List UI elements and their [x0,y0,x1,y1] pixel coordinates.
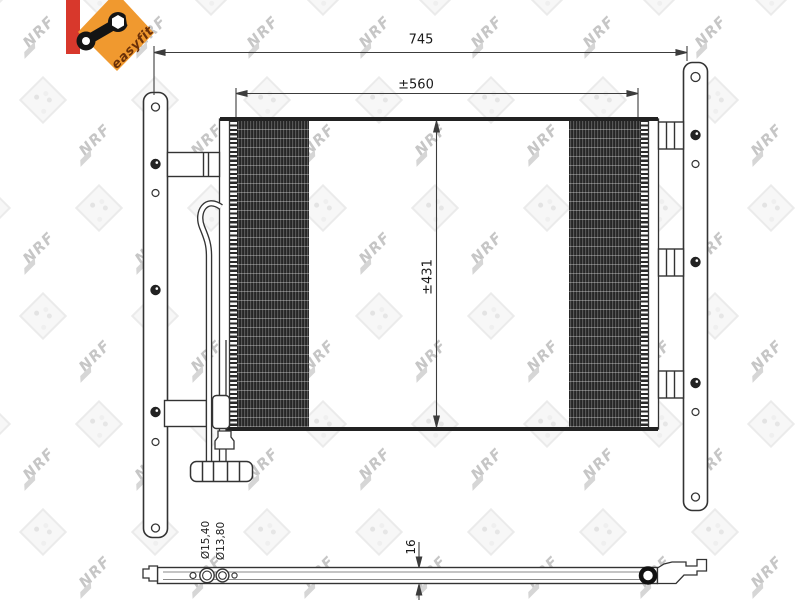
tank-outlet-flange [215,431,234,449]
technical-drawing-page: NRFNRFNRFNRFNRFNRFNRFNRFNRFNRFNRFNRFNRFN… [0,0,800,600]
lower-outlet-pipe [165,401,207,427]
top-inlet-pipe [168,153,220,177]
port-small [216,569,229,582]
right-connector-blocks [659,122,684,398]
port-diameter-large-label: Ø15,40 [200,521,212,559]
core-bottom-plate [220,427,658,431]
bottom-service-fitting [191,462,253,482]
thickness-dimension-label: 16 [404,539,418,554]
port-diameter-small-label: Ø13,80 [215,522,227,560]
port-large [200,568,214,582]
core-top-plate [220,117,658,121]
side-view-right-hook [658,560,707,584]
right-mounting-bracket [684,63,708,511]
right-header-tank [649,119,659,429]
side-view-ring [641,569,655,583]
overall-width-dimension-label: 745 [409,33,434,48]
dimension-lines [154,46,687,600]
side-view-left-hook [143,566,158,581]
core-height-dimension-label: ±431 [421,259,436,295]
condenser-side-view [143,560,707,584]
tube-coupler [213,396,230,429]
core-width-dimension-label: ±560 [398,78,434,93]
